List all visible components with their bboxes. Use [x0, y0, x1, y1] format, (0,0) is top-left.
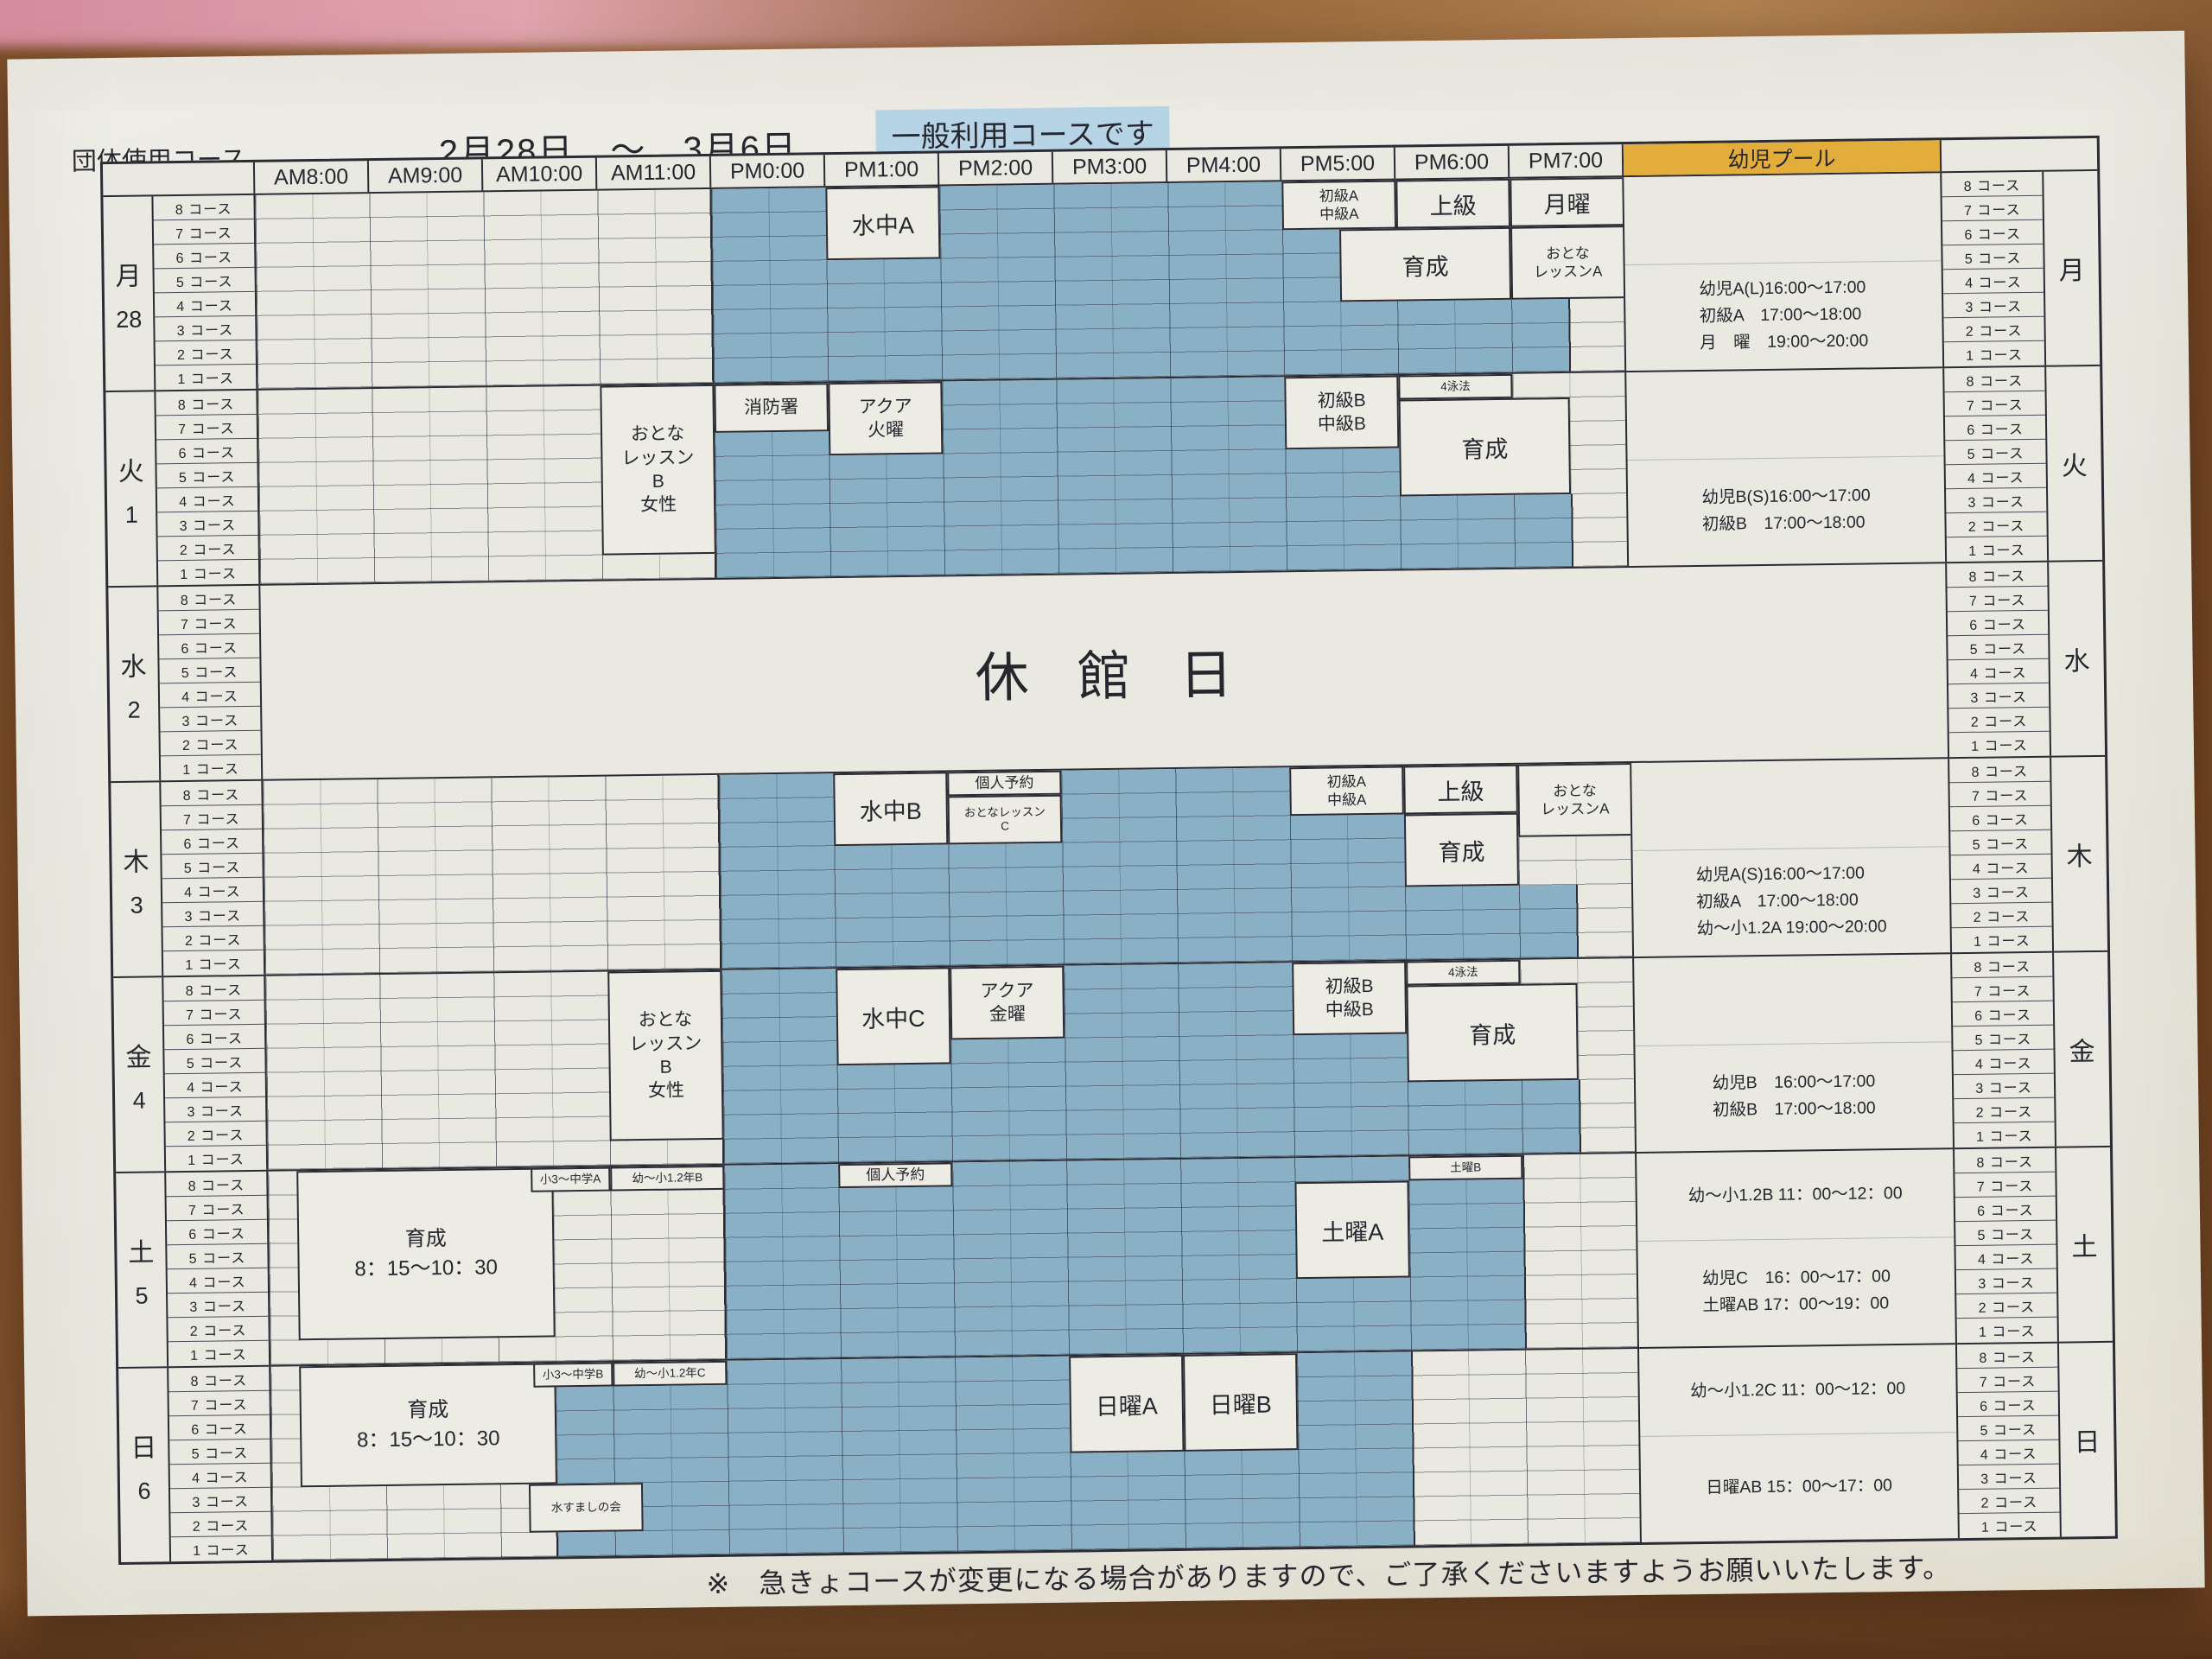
schedule-block: 水中A — [825, 186, 940, 260]
course-label: 2 コース — [165, 1122, 265, 1147]
course-label: 4 コース — [1954, 1050, 2054, 1076]
course-label: 2 コース — [156, 340, 256, 366]
time-header-cell: PM2:00 — [939, 152, 1053, 185]
schedule-block: 育成 — [1339, 227, 1511, 302]
course-column-left: 8 コース7 コース6 コース5 コース4 コース3 コース2 コース1 コース — [166, 1172, 270, 1367]
course-label: 1 コース — [168, 1341, 269, 1367]
course-label: 3 コース — [165, 1097, 265, 1123]
closed-banner: 休館日 — [260, 563, 1949, 779]
course-label: 3 コース — [168, 1293, 268, 1319]
course-label: 3 コース — [170, 1488, 270, 1514]
course-label: 8 コース — [158, 586, 258, 612]
schedule-block: 4泳法 — [1398, 374, 1512, 400]
day-row-thu: 木38 コース7 コース6 コース5 コース4 コース3 コース2 コース1 コ… — [111, 757, 2107, 978]
course-label: 4 コース — [160, 683, 260, 709]
schedule-block: おとな レッスンA — [1510, 226, 1625, 300]
course-label: 8 コース — [1942, 172, 2042, 198]
time-header-cell: PM7:00 — [1510, 144, 1624, 177]
schedule-block: アクア 火曜 — [828, 381, 943, 455]
course-label: 8 コース — [156, 391, 256, 416]
course-label: 4 コース — [155, 292, 255, 318]
course-label: 7 コース — [1942, 196, 2043, 222]
pink-object — [0, 0, 1201, 47]
day-kanji: 土 — [2071, 1225, 2098, 1263]
day-kanji: 水 — [2063, 639, 2090, 677]
time-grid: おとな レッスン B 女性消防署アクア 火曜初級B 中級B4泳法育成 — [257, 372, 1629, 584]
course-label: 5 コース — [159, 658, 259, 684]
day-label-left: 月28 — [103, 196, 156, 391]
course-label: 8 コース — [1949, 758, 2050, 784]
course-label: 8 コース — [1952, 953, 2052, 979]
course-label: 6 コース — [154, 244, 254, 270]
schedule-block: 消防署 — [714, 383, 829, 433]
course-label: 6 コース — [164, 1025, 264, 1051]
pool-column: 幼児A(L)16:00～17:00 初級A 17:00～18:00 月 曜 19… — [1624, 173, 1944, 371]
schedule-block: 土曜B — [1408, 1155, 1522, 1181]
pool-note-lower: 幼児C 16：00～17：00 土曜AB 17：00～19：00 — [1637, 1236, 1955, 1347]
schedule-block: おとな レッスンA — [1517, 763, 1632, 837]
day-date: 4 — [132, 1087, 145, 1114]
course-label: 1 コース — [1960, 1513, 2060, 1539]
pool-note-upper: 幼～小1.2C 11：00～12：00 — [1639, 1344, 1956, 1436]
course-label: 4 コース — [1946, 464, 2046, 490]
course-column-left: 8 コース7 コース6 コース5 コース4 コース3 コース2 コース1 コース — [161, 781, 265, 976]
pool-column: 幼児A(S)16:00～17:00 初級A 17:00～18:00 幼～小1.2… — [1631, 759, 1952, 957]
time-header-cell: PM0:00 — [711, 155, 825, 188]
time-header-cell: PM6:00 — [1395, 146, 1510, 179]
schedule-block: 水すましの会 — [529, 1483, 644, 1533]
course-label: 5 コース — [1955, 1221, 2056, 1247]
day-date: 28 — [116, 306, 142, 333]
course-label: 5 コース — [167, 1244, 267, 1270]
course-label: 8 コース — [1957, 1344, 2057, 1370]
course-column-left: 8 コース7 コース6 コース5 コース4 コース3 コース2 コース1 コース — [156, 391, 260, 586]
course-label: 3 コース — [155, 316, 255, 342]
schedule-block: 上級 — [1403, 765, 1518, 815]
time-grid: 育成 8：15～10：30小3～中学B幼～小1.2年C水すましの会日曜A日曜B — [270, 1349, 1642, 1560]
schedule-block: おとな レッスン B 女性 — [607, 970, 724, 1141]
course-label: 6 コース — [162, 829, 262, 855]
schedule-block: 初級B 中級B — [1292, 961, 1407, 1035]
time-grid: おとな レッスン B 女性水中Cアクア 金曜初級B 中級B4泳法育成 — [265, 958, 1637, 1170]
day-row-tue: 火18 コース7 コース6 コース5 コース4 コース3 コース2 コース1 コ… — [105, 366, 2102, 588]
course-label: 1 コース — [1952, 927, 2052, 953]
course-label: 5 コース — [156, 463, 257, 489]
course-label: 5 コース — [1948, 635, 2048, 661]
day-kanji: 日 — [130, 1426, 157, 1464]
course-label: 7 コース — [1952, 977, 2052, 1003]
course-label: 7 コース — [162, 805, 262, 831]
course-label: 5 コース — [162, 854, 262, 880]
course-label: 7 コース — [167, 1196, 267, 1222]
course-label: 2 コース — [162, 926, 263, 952]
day-date: 5 — [135, 1282, 148, 1309]
course-column-right: 8 コース7 コース6 コース5 コース4 コース3 コース2 コース1 コース — [1944, 367, 2049, 563]
course-label: 2 コース — [1959, 1489, 2059, 1515]
course-label: 1 コース — [163, 950, 264, 976]
course-label: 7 コース — [169, 1391, 270, 1417]
schedule-block: 水中C — [836, 967, 950, 1065]
pool-note-lower: 幼児B(S)16:00～17:00 初級B 17:00～18:00 — [1628, 455, 1946, 566]
schedule-block: 日曜B — [1183, 1353, 1298, 1452]
course-label: 3 コース — [1946, 488, 2046, 514]
course-label: 1 コース — [171, 1536, 271, 1562]
course-label: 3 コース — [1948, 683, 2049, 709]
pool-note-lower: 幼児A(S)16:00～17:00 初級A 17:00～18:00 幼～小1.2… — [1632, 846, 1950, 957]
pool-note-lower: 幼児B 16:00～17:00 初級B 17:00～18:00 — [1635, 1041, 1953, 1152]
day-kanji: 火 — [2061, 444, 2088, 482]
day-kanji: 金 — [2069, 1030, 2095, 1068]
course-label: 3 コース — [160, 707, 260, 733]
day-label-left: 水2 — [108, 587, 161, 781]
schedule-block: 個人予約 — [838, 1162, 952, 1188]
day-kanji: 火 — [118, 449, 144, 487]
schedule-block: 初級A 中級A — [1289, 766, 1404, 816]
day-kanji: 日 — [2074, 1421, 2101, 1459]
course-label: 8 コース — [153, 195, 253, 221]
day-kanji: 月 — [115, 254, 142, 292]
day-date: 3 — [130, 892, 143, 918]
course-label: 8 コース — [168, 1367, 269, 1393]
schedule-block: 小3～中学B — [533, 1363, 613, 1388]
schedule-block: 日曜A — [1069, 1355, 1184, 1453]
course-label: 5 コース — [1953, 1026, 2053, 1052]
schedule-block: 育成 — [1406, 983, 1578, 1083]
course-label: 2 コース — [161, 731, 261, 757]
course-label: 3 コース — [1959, 1465, 2059, 1491]
course-label: 4 コース — [165, 1073, 265, 1099]
course-label: 3 コース — [1943, 293, 2044, 319]
day-label-right: 月 — [2044, 171, 2100, 365]
course-label: 4 コース — [162, 878, 263, 904]
course-label: 6 コース — [1942, 220, 2043, 246]
day-label-right: 火 — [2046, 366, 2102, 561]
course-label: 8 コース — [163, 976, 264, 1002]
header-spacer-right — [1942, 138, 2097, 171]
schedule-block: 初級B 中級B — [1284, 376, 1399, 450]
course-label: 5 コース — [1942, 245, 2043, 270]
course-column-right: 8 コース7 コース6 コース5 コース4 コース3 コース2 コース1 コース — [1947, 563, 2051, 758]
pool-column: 幼～小1.2C 11：00～12：00日曜AB 15：00～17：00 — [1639, 1344, 1960, 1542]
course-label: 6 コース — [1958, 1392, 2058, 1418]
course-column-left: 8 コース7 コース6 コース5 コース4 コース3 コース2 コース1 コース — [153, 195, 257, 391]
day-label-right: 土 — [2056, 1147, 2113, 1342]
day-label-left: 木3 — [111, 782, 163, 976]
course-label: 2 コース — [1954, 1098, 2054, 1124]
course-label: 1 コース — [1947, 537, 2047, 563]
course-label: 1 コース — [158, 560, 258, 586]
time-header-cell: PM5:00 — [1281, 148, 1395, 181]
course-label: 4 コース — [157, 487, 257, 513]
course-label: 6 コース — [1953, 1001, 2053, 1027]
course-column-left: 8 コース7 コース6 コース5 コース4 コース3 コース2 コース1 コース — [163, 976, 268, 1172]
pool-column: 幼児B(S)16:00～17:00 初級B 17:00～18:00 — [1626, 368, 1947, 566]
course-label: 8 コース — [1944, 367, 2044, 393]
course-label: 8 コース — [161, 781, 261, 807]
course-column-left: 8 コース7 コース6 コース5 コース4 コース3 コース2 コース1 コース — [168, 1367, 273, 1562]
course-column-right: 8 コース7 コース6 コース5 コース4 コース3 コース2 コース1 コース — [1955, 1148, 2059, 1344]
course-label: 5 コース — [169, 1440, 270, 1465]
course-label: 1 コース — [1944, 341, 2044, 367]
day-label-left: 日6 — [118, 1368, 171, 1562]
course-label: 7 コース — [1955, 1173, 2055, 1198]
course-label: 7 コース — [1948, 587, 2048, 613]
pool-note-upper: 幼～小1.2B 11：00～12：00 — [1637, 1149, 1954, 1241]
course-label: 1 コース — [166, 1146, 266, 1172]
time-header-cell: PM4:00 — [1167, 149, 1281, 181]
course-label: 7 コース — [159, 610, 259, 636]
course-label: 4 コース — [1958, 1440, 2058, 1466]
course-label: 2 コース — [1946, 512, 2046, 538]
schedule-block: 幼～小1.2年C — [613, 1361, 727, 1387]
day-kanji: 金 — [125, 1035, 152, 1073]
course-label: 3 コース — [1954, 1074, 2054, 1100]
course-label: 7 コース — [1949, 782, 2050, 808]
day-kanji: 月 — [2058, 249, 2085, 287]
schedule-block: 育成 — [1399, 397, 1571, 497]
course-label: 2 コース — [1943, 317, 2044, 343]
day-label-right: 木 — [2051, 757, 2107, 951]
schedule-block: 水中B — [833, 772, 948, 846]
course-label: 3 コース — [162, 902, 263, 928]
time-header-cell: AM8:00 — [255, 161, 369, 194]
course-label: 7 コース — [154, 219, 254, 245]
time-grid: 育成 8：15～10：30小3～中学A幼～小1.2年B個人予約土曜A土曜B — [268, 1154, 1639, 1365]
course-label: 2 コース — [1951, 903, 2051, 929]
schedule-table: AM8:00AM9:00AM10:00AM11:00PM0:00PM1:00PM… — [100, 136, 2118, 1565]
course-label: 2 コース — [1956, 1294, 2056, 1319]
time-header-cell: PM1:00 — [825, 153, 939, 186]
course-column-right: 8 コース7 コース6 コース5 コース4 コース3 コース2 コース1 コース — [1952, 953, 2056, 1148]
course-label: 5 コース — [1950, 830, 2050, 856]
schedule-block: アクア 金曜 — [950, 966, 1065, 1040]
course-label: 3 コース — [1956, 1269, 2056, 1295]
course-label: 6 コース — [156, 439, 257, 465]
paper-sheet: 団体使用コース 2月28日 ～ 3月6日 一般利用コースです AM8:00AM9… — [7, 31, 2204, 1617]
day-date: 6 — [137, 1478, 150, 1504]
schedule-block: おとなレッスン C — [948, 795, 1063, 845]
time-header-cell: AM11:00 — [597, 156, 711, 189]
course-label: 4 コース — [1951, 855, 2051, 880]
schedule-block: 育成 8：15～10：30 — [296, 1167, 556, 1340]
schedule-block: 土曜A — [1294, 1180, 1409, 1279]
day-row-mon: 月288 コース7 コース6 コース5 コース4 コース3 コース2 コース1 … — [103, 171, 2100, 392]
course-label: 2 コース — [158, 536, 258, 562]
day-kanji: 水 — [120, 645, 147, 683]
course-label: 6 コース — [1950, 806, 2050, 832]
day-row-sun: 日68 コース7 コース6 コース5 コース4 コース3 コース2 コース1 コ… — [118, 1343, 2115, 1562]
schedule-block: 個人予約 — [947, 771, 1061, 797]
schedule-block: 育成 — [1404, 813, 1519, 887]
schedule-block: 上級 — [1395, 179, 1510, 229]
schedule-block: おとな レッスン B 女性 — [600, 385, 716, 556]
course-label: 2 コース — [168, 1317, 268, 1343]
day-label-left: 土5 — [116, 1173, 168, 1367]
day-date: 2 — [127, 696, 140, 723]
day-row-wed: 水28 コース7 コース6 コース5 コース4 コース3 コース2 コース1 コ… — [108, 562, 2105, 783]
pool-header: 幼児プール — [1624, 140, 1942, 175]
course-label: 4 コース — [1943, 269, 2044, 295]
schedule-block: 初級A 中級A — [1281, 181, 1396, 231]
course-label: 6 コース — [169, 1415, 270, 1441]
course-label: 7 コース — [1957, 1368, 2057, 1394]
day-label-right: 日 — [2059, 1343, 2115, 1537]
day-label-left: 火1 — [105, 391, 158, 586]
course-label: 2 コース — [170, 1512, 270, 1538]
pool-column: 幼～小1.2B 11：00～12：00幼児C 16：00～17：00 土曜AB … — [1637, 1149, 1957, 1347]
day-label-left: 金4 — [113, 977, 166, 1172]
course-label: 8 コース — [166, 1172, 266, 1198]
course-label: 5 コース — [164, 1049, 264, 1075]
course-label: 4 コース — [170, 1464, 270, 1490]
day-kanji: 木 — [2066, 835, 2093, 873]
course-label: 4 コース — [1948, 659, 2049, 685]
course-label: 6 コース — [167, 1220, 267, 1246]
course-label: 1 コース — [1949, 732, 2050, 758]
course-label: 6 コース — [159, 634, 259, 660]
day-row-fri: 金48 コース7 コース6 コース5 コース4 コース3 コース2 コース1 コ… — [113, 952, 2110, 1173]
course-column-right: 8 コース7 コース6 コース5 コース4 コース3 コース2 コース1 コース — [1957, 1344, 2062, 1539]
pool-note-lower: 幼児A(L)16:00～17:00 初級A 17:00～18:00 月 曜 19… — [1625, 260, 1943, 371]
time-header-cell: PM3:00 — [1053, 150, 1167, 183]
course-label: 2 コース — [1948, 708, 2049, 734]
course-label: 1 コース — [1957, 1318, 2057, 1344]
pool-column: 幼児B 16:00～17:00 初級B 17:00～18:00 — [1634, 954, 1955, 1152]
day-label-right: 水 — [2049, 562, 2105, 756]
time-header-cell: AM10:00 — [483, 158, 597, 191]
course-label: 3 コース — [157, 512, 257, 537]
course-column-right: 8 コース7 コース6 コース5 コース4 コース3 コース2 コース1 コース — [1942, 172, 2046, 367]
course-label: 5 コース — [1958, 1416, 2058, 1442]
day-kanji: 木 — [123, 840, 149, 878]
pool-note-lower: 日曜AB 15：00～17：00 — [1640, 1432, 1958, 1542]
course-label: 1 コース — [1955, 1122, 2055, 1148]
course-label: 8 コース — [1947, 563, 2047, 588]
time-header-cell: AM9:00 — [369, 159, 483, 192]
course-label: 4 コース — [168, 1268, 268, 1294]
course-label: 6 コース — [1955, 1197, 2056, 1223]
day-kanji: 土 — [128, 1230, 155, 1268]
schedule-block: 小3～中学A — [531, 1167, 611, 1192]
course-column-right: 8 コース7 コース6 コース5 コース4 コース3 コース2 コース1 コース — [1949, 758, 2054, 953]
course-label: 7 コース — [156, 415, 257, 441]
schedule-block: 幼～小1.2年B — [610, 1166, 724, 1192]
schedule-block: 4泳法 — [1406, 960, 1520, 986]
day-row-sat: 土58 コース7 コース6 コース5 コース4 コース3 コース2 コース1 コ… — [116, 1147, 2113, 1369]
day-date: 1 — [125, 501, 138, 528]
schedule-block: 育成 8：15～10：30 — [299, 1363, 557, 1487]
time-grid: 水中A初級A 中級A上級月曜育成おとな レッスンA — [255, 177, 1626, 389]
course-label: 3 コース — [1951, 879, 2051, 905]
header-spacer-left — [103, 162, 255, 195]
course-label: 5 コース — [1945, 440, 2045, 466]
course-label: 7 コース — [164, 1001, 264, 1027]
course-column-left: 8 コース7 コース6 コース5 コース4 コース3 コース2 コース1 コース — [158, 586, 263, 781]
schedule-block: 月曜 — [1510, 177, 1624, 227]
course-label: 1 コース — [161, 755, 261, 781]
course-label: 1 コース — [156, 365, 256, 391]
course-label: 6 コース — [1945, 416, 2045, 442]
day-label-right: 金 — [2054, 952, 2110, 1147]
course-label: 5 コース — [155, 268, 255, 294]
course-label: 6 コース — [1948, 611, 2048, 637]
course-label: 8 コース — [1955, 1148, 2055, 1174]
course-label: 7 コース — [1945, 391, 2045, 417]
time-grid: 水中B個人予約おとなレッスン C初級A 中級A上級おとな レッスンA育成 — [263, 763, 1634, 975]
course-label: 4 コース — [1955, 1245, 2056, 1271]
